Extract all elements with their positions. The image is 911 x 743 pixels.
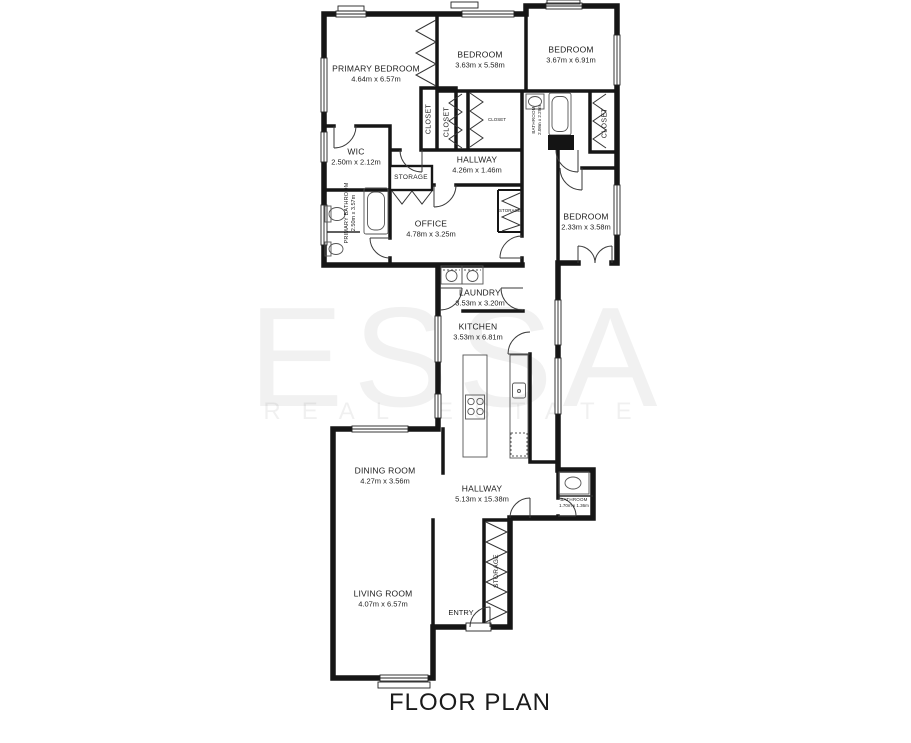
room-label-hallway-upper: HALLWAY4.26m x 1.46m <box>452 155 502 176</box>
closet-label-2: CLOSET <box>442 107 451 137</box>
floor-plan-page: ESSA REAL ESTATE <box>0 0 911 743</box>
closet-label-small: CLOSET <box>488 117 506 123</box>
room-label-laundry: LAUNDRY3.53m x 3.20m <box>455 288 505 309</box>
storage-label-office: STORAGE <box>499 208 521 214</box>
room-label-bedroom-4: BEDROOM2.33m x 3.58m <box>561 212 611 233</box>
room-label-office: OFFICE4.78m x 3.25m <box>406 219 456 240</box>
room-label-dining-room: DINING ROOM4.27m x 3.56m <box>355 466 416 487</box>
storage-label-lower: STORAGE <box>493 554 501 588</box>
floor-plan-drawing <box>0 0 911 743</box>
room-label-bathroom-upper: BATHROOM2.08m x 2.29m <box>531 105 543 135</box>
doors <box>334 126 612 627</box>
room-label-bathroom-lower: BATHROOM1.70m x 1.36m <box>559 497 589 509</box>
room-label-living-room: LIVING ROOM4.07m x 6.57m <box>354 589 413 610</box>
room-label-bedroom-3: BEDROOM3.67m x 6.91m <box>546 45 596 66</box>
room-label-wic: WIC2.50m x 2.12m <box>331 147 381 168</box>
storage-label-left: STORAGE <box>394 174 428 182</box>
shower-block <box>548 135 574 150</box>
room-label-entry: ENTRY <box>448 608 473 618</box>
interior-walls <box>324 14 617 627</box>
page-title: FLOOR PLAN <box>389 689 551 717</box>
room-label-primary-bedroom: PRIMARY BEDROOM4.64m x 6.57m <box>332 64 420 85</box>
room-label-primary-bathroom: PRIMARY BATHROOM2.50m x 3.57m <box>344 183 358 244</box>
room-label-hallway-lower: HALLWAY5.13m x 15.38m <box>455 484 509 505</box>
closet-label-1: CLOSET <box>424 104 433 134</box>
room-label-kitchen: KITCHEN3.53m x 6.81m <box>453 322 503 343</box>
room-label-bedroom-2: BEDROOM3.63m x 5.58m <box>455 50 505 71</box>
closet-label-right: CLOSET <box>600 108 609 138</box>
windows <box>321 0 620 688</box>
